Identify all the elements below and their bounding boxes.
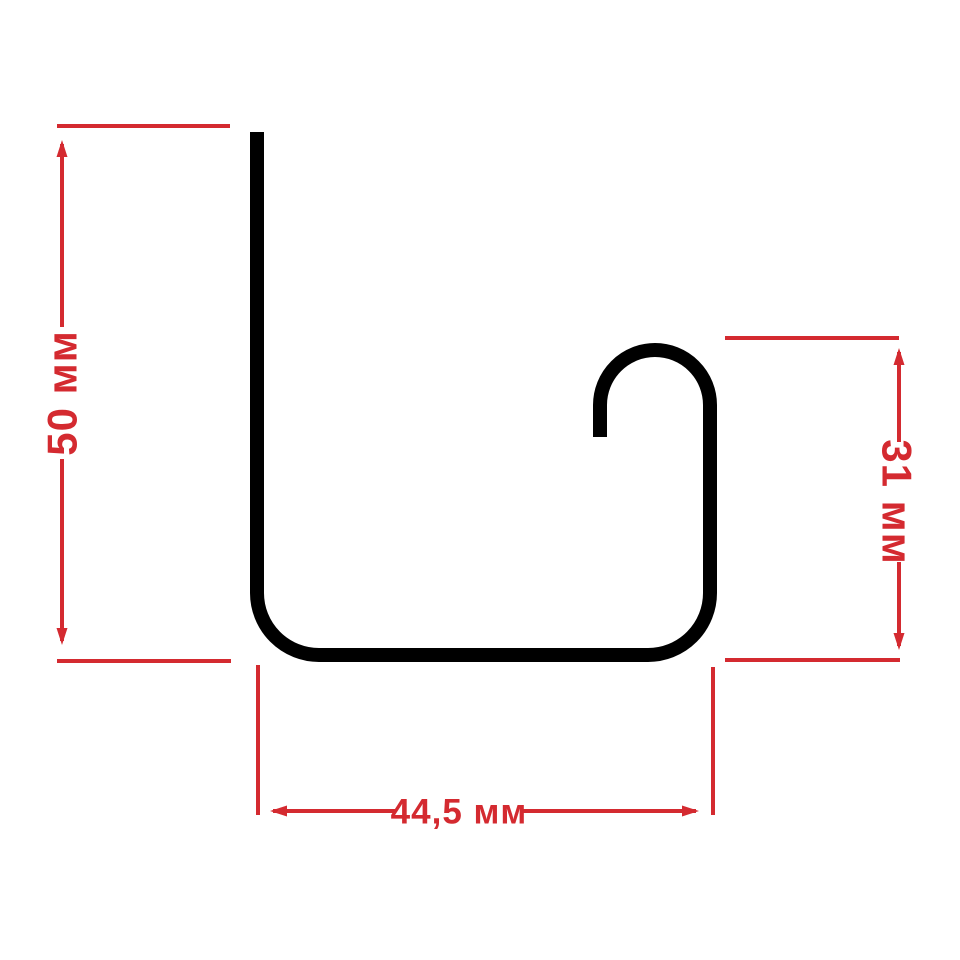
hook-height-dimension-label: 31 мм [873,439,920,565]
width-arrow-right-icon [682,806,699,817]
hook-height-arrow-down-icon [894,633,905,650]
hook-height-arrow-up-icon [894,348,905,365]
drawing-canvas: 50 мм 31 мм 44,5 мм [0,0,960,960]
hook-height-dimension: 31 мм [725,338,920,660]
profile-drawing: 50 мм 31 мм 44,5 мм [0,0,960,960]
width-dimension-label: 44,5 мм [391,792,528,831]
height-dimension: 50 мм [39,126,231,661]
height-arrow-up-icon [57,140,68,157]
width-arrow-left-icon [270,806,287,817]
height-arrow-down-icon [57,628,68,645]
profile-outline [257,132,710,655]
width-dimension: 44,5 мм [258,665,713,831]
height-dimension-label: 50 мм [39,330,86,456]
